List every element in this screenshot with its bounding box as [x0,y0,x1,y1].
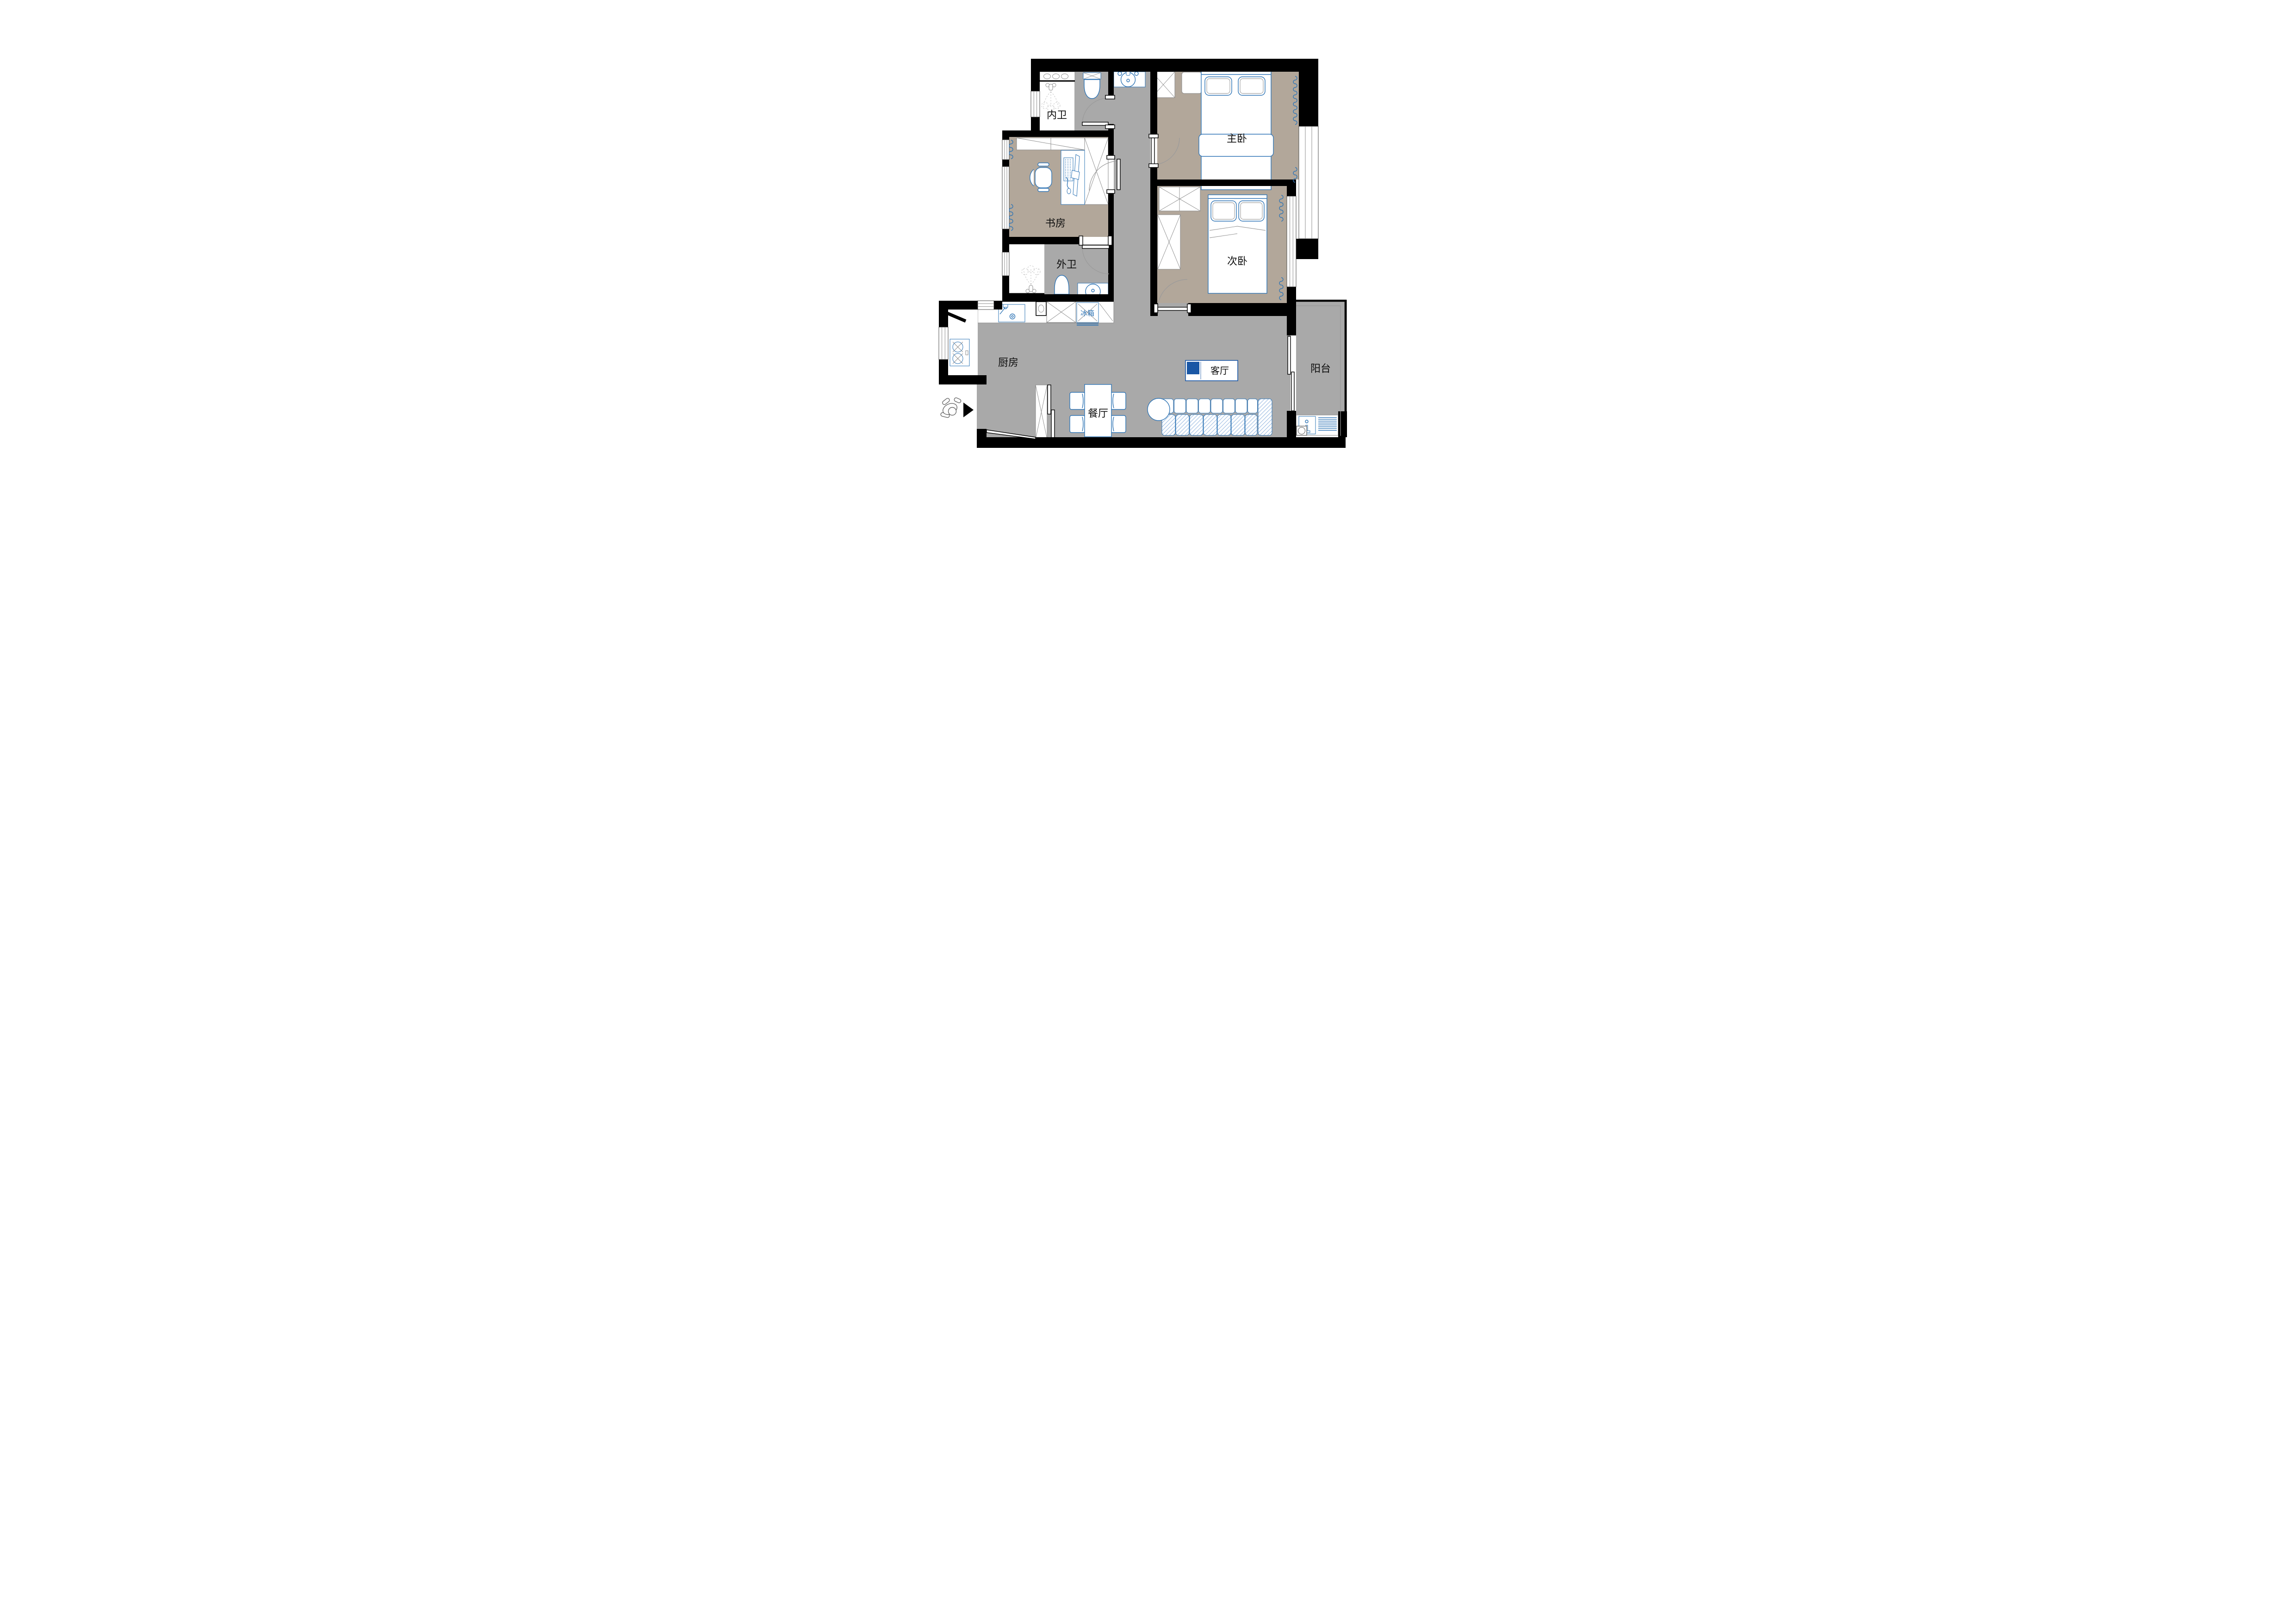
room-label-outer-bathroom: 外卫 [1056,259,1077,270]
wall-segment [1150,59,1157,138]
sofa-cushion [1235,399,1247,413]
door-jamb [1149,164,1158,167]
wall-segment [1188,303,1287,316]
wall-segment [1287,411,1296,437]
wall-segment [1031,59,1318,72]
sofa-cushion [1223,399,1235,413]
room-label-balcony: 阳台 [1310,363,1331,374]
wall-segment [1287,287,1296,335]
room-label-inner-bathroom: 内卫 [1047,109,1067,121]
door-leaf [1117,159,1120,190]
pillow-icon [1211,201,1236,221]
sofa-cushion [1248,399,1258,413]
wall-segment [1108,72,1114,99]
floors [939,72,1347,440]
wall-segment [939,359,948,375]
pillow-icon [1238,77,1265,95]
sliding-door-panel [1291,372,1294,411]
vanity-counter [1040,72,1075,81]
sofa-seat [1176,415,1189,435]
door-leaf [1151,138,1154,165]
door-jamb [1154,304,1158,313]
door-leaf [1082,122,1108,125]
side-table-icon [1148,398,1170,421]
counter-cabinet [1036,302,1046,316]
hall-basin [1114,70,1145,87]
wall-segment [939,301,978,310]
sofa-chaise [1258,399,1272,435]
window [1287,196,1296,287]
drying-rack-icon [1318,418,1337,430]
window [978,301,994,310]
wall-segment [939,375,987,384]
shower-icon [1042,83,1060,112]
desk-icon [1061,150,1085,204]
wall-segment [1157,180,1296,186]
wall-segment [1296,239,1318,259]
sofa-seat [1204,415,1217,435]
fridge-label: 冰箱 [1080,310,1094,317]
nightstand [1182,72,1202,93]
toilet-icon [1083,73,1101,99]
floor-plan-canvas: 内卫 书房 外卫 主卧 次卧 厨房 餐厅 客厅 阳台 冰箱 [792,0,1504,504]
window [1031,91,1040,117]
bed-icon-second [1208,195,1267,293]
floor-outer-bath-shower [1009,244,1044,302]
door-jamb [1107,155,1115,159]
door-jamb [1105,125,1115,129]
sofa-seat [1245,415,1257,435]
door-leaf [1082,245,1109,248]
wall-segment [1002,294,1114,302]
wall-segment [1002,237,1082,244]
room-label-master-bedroom: 主卧 [1227,133,1247,144]
wall-segment [1150,165,1157,303]
wall-segment [1002,130,1114,137]
window [1002,167,1009,229]
mouse-icon [1067,188,1071,194]
wall-segment [1002,137,1009,140]
bed-icon-master [1199,70,1273,190]
door-jamb [1187,304,1191,313]
door-jamb [1105,95,1115,99]
sofa-icon [1148,398,1272,435]
laundry-zone [1296,415,1338,435]
wall-segment [1031,72,1040,91]
door-jamb [1149,134,1158,138]
door-jamb [1079,236,1083,245]
sofa-cushion [1199,399,1210,413]
sofa-cushion [1174,399,1186,413]
sliding-door-panel [1051,410,1055,439]
window [1002,140,1009,160]
room-label-dining: 餐厅 [1088,408,1108,419]
wall-segment [1002,160,1009,167]
sofa-cushion [1186,399,1198,413]
room-label-living: 客厅 [1210,365,1229,376]
pillow-icon [1239,201,1264,221]
wall-segment [1299,72,1318,126]
sofa-seat [1231,415,1245,435]
room-label-study: 书房 [1045,217,1066,229]
sliding-door-panel [1048,385,1051,414]
room-label-kitchen: 厨房 [998,357,1018,368]
window [1299,126,1318,239]
sofa-seat [1217,415,1231,435]
sliding-door-panel [1288,336,1291,374]
door-jamb [1107,190,1115,193]
floor-plan-page: 内卫 书房 外卫 主卧 次卧 厨房 餐厅 客厅 阳台 冰箱 [792,0,1504,504]
pillow-icon [1205,77,1232,95]
window [1002,252,1009,276]
wall-segment [1287,186,1296,196]
sofa-seat [1190,415,1203,435]
window [939,327,948,359]
door-jamb [1108,236,1112,245]
stove-icon [950,339,969,366]
sofa-cushion [1211,399,1222,413]
kitchen-sink-icon [999,304,1025,322]
wall-segment [994,301,1002,310]
room-label-second-bedroom: 次卧 [1227,255,1247,267]
door-leaf [1158,307,1187,310]
